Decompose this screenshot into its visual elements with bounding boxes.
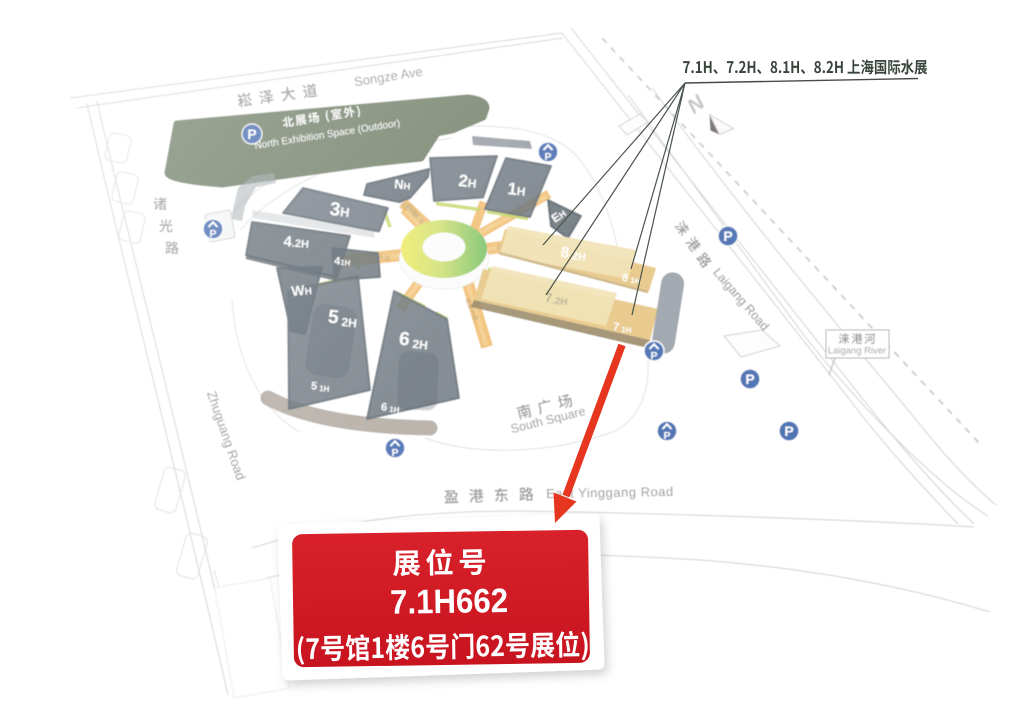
svg-text:7.1H662: 7.1H662 [390,582,509,622]
